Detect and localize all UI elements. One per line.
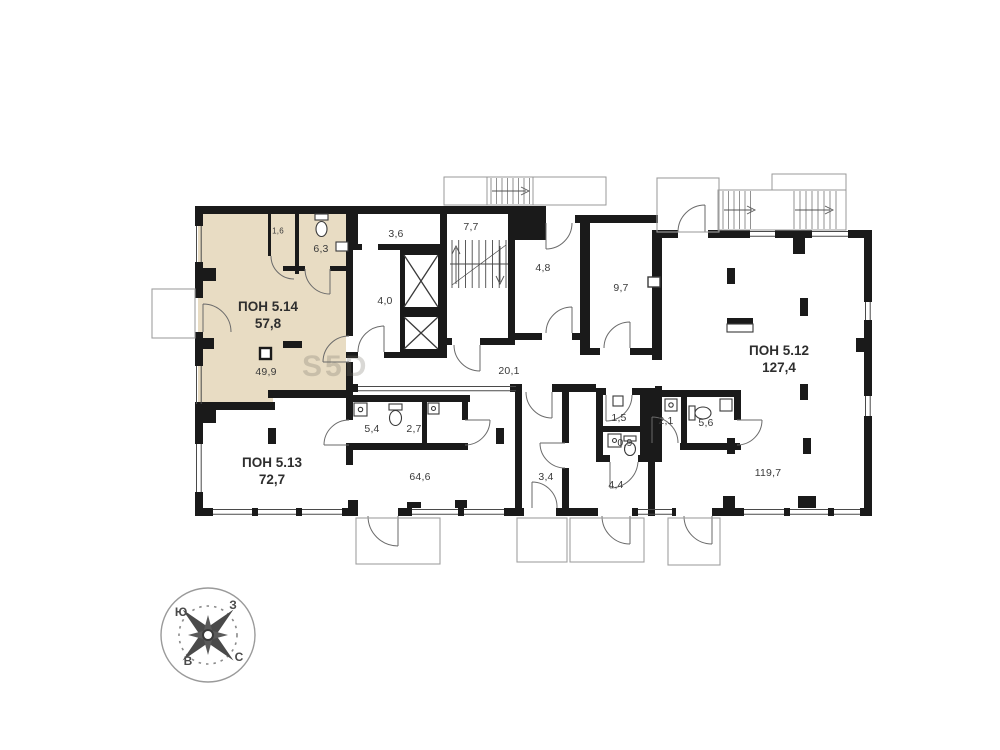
sink-icon: [665, 399, 677, 411]
unit-name: ПОН 5.12: [749, 343, 809, 358]
room-area-label: 5,4: [364, 423, 379, 435]
shelf-icon: [336, 242, 348, 251]
room-area-label: 6,3: [313, 243, 328, 255]
compass-letter-north: С: [235, 650, 244, 664]
compass-letter-west: З: [229, 598, 237, 612]
unit-area: 127,4: [762, 360, 796, 375]
toilet-icon: [315, 214, 328, 237]
sink-icon: [428, 403, 439, 414]
unit-area: 57,8: [255, 316, 281, 331]
compass-letter-south: Ю: [175, 605, 187, 619]
room-area-label: 9,7: [613, 282, 628, 294]
room-area-label: 0,9: [617, 437, 632, 449]
sink-icon: [613, 396, 623, 406]
room-area-label: 4,4: [608, 479, 623, 491]
room-area-label: 4,8: [535, 262, 550, 274]
watermark: S5D: [302, 350, 369, 384]
room-area-label: 2,1: [658, 415, 673, 427]
room-area-label: 5,6: [698, 417, 713, 429]
sink-icon: [354, 403, 367, 416]
stairwell-stairs-icon: [450, 240, 508, 288]
external-stairs-top-middle: [444, 177, 606, 205]
unit-area: 72,7: [259, 472, 285, 487]
room-area-label: 119,7: [755, 467, 782, 479]
room-area-label: 7,7: [463, 221, 478, 233]
shaft-icon: [260, 348, 271, 359]
room-area-label: 2,7: [406, 423, 421, 435]
room-area-label: 64,6: [409, 471, 430, 483]
unit-label-5-12: ПОН 5.12 127,4: [749, 342, 809, 376]
floor-plan-canvas: ПОН 5.14 57,8 ПОН 5.13 72,7 ПОН 5.12 127…: [0, 0, 1000, 750]
sink-icon: [720, 399, 732, 411]
shelf-icon: [727, 324, 753, 332]
room-area-label: 20,1: [498, 365, 519, 377]
room-area-label: 1,5: [611, 412, 626, 424]
unit-label-5-13: ПОН 5.13 72,7: [242, 454, 302, 488]
room-area-label: 4,0: [377, 295, 392, 307]
compass-rose: [161, 588, 255, 682]
external-stairs-top-right: [718, 174, 846, 230]
room-area-label: 3,6: [388, 228, 403, 240]
toilet-icon: [389, 404, 402, 426]
room-area-label: 3,4: [538, 471, 553, 483]
room-area-label: 49,9: [255, 366, 276, 378]
unit-label-5-14: ПОН 5.14 57,8: [238, 298, 298, 332]
elevator-shafts-icon: [403, 253, 441, 352]
unit-name: ПОН 5.13: [242, 455, 302, 470]
unit-name: ПОН 5.14: [238, 299, 298, 314]
room-area-label: 1,6: [272, 227, 284, 236]
compass-letter-east: В: [184, 654, 193, 668]
panel-icon: [648, 277, 660, 287]
